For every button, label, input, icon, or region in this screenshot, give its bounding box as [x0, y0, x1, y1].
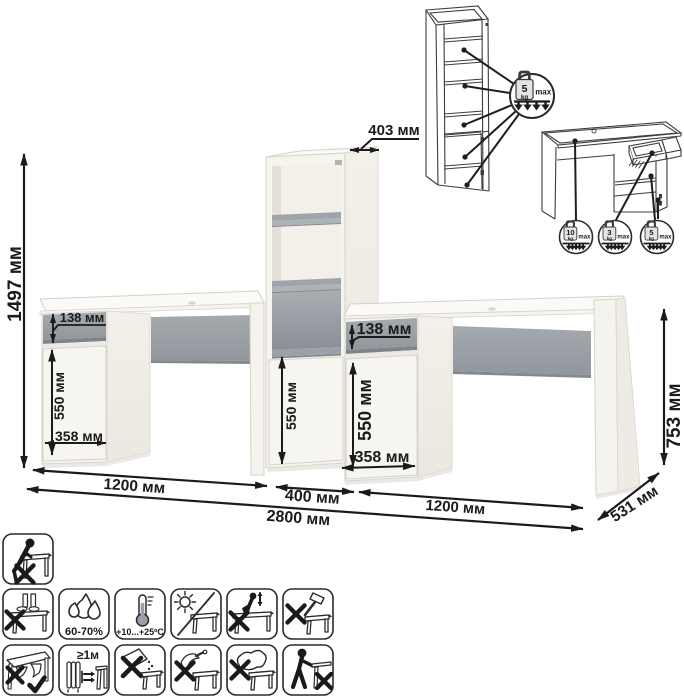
svg-text:kg: kg: [649, 236, 655, 241]
svg-text:≥1м: ≥1м: [77, 648, 99, 662]
svg-text:kg: kg: [568, 236, 574, 241]
svg-text:138 мм: 138 мм: [357, 321, 412, 338]
svg-text:358 мм: 358 мм: [355, 449, 410, 466]
svg-text:753 мм: 753 мм: [664, 383, 684, 448]
svg-text:max: max: [659, 234, 672, 240]
svg-text:403 мм: 403 мм: [368, 122, 419, 139]
svg-text:550 мм: 550 мм: [51, 372, 67, 420]
svg-text:550 мм: 550 мм: [283, 382, 299, 430]
svg-text:60-70%: 60-70%: [65, 626, 103, 638]
svg-text:max: max: [578, 234, 591, 240]
svg-text:+10...+25ºC: +10...+25ºC: [116, 627, 164, 637]
svg-text:358 мм: 358 мм: [55, 428, 103, 444]
svg-text:550 мм: 550 мм: [355, 379, 375, 441]
svg-text:max: max: [535, 88, 552, 97]
svg-text:1497 мм: 1497 мм: [5, 246, 26, 322]
svg-text:kg: kg: [521, 94, 529, 101]
svg-text:max: max: [617, 234, 630, 240]
svg-text:138 мм: 138 мм: [60, 310, 105, 325]
svg-text:kg: kg: [607, 236, 613, 241]
